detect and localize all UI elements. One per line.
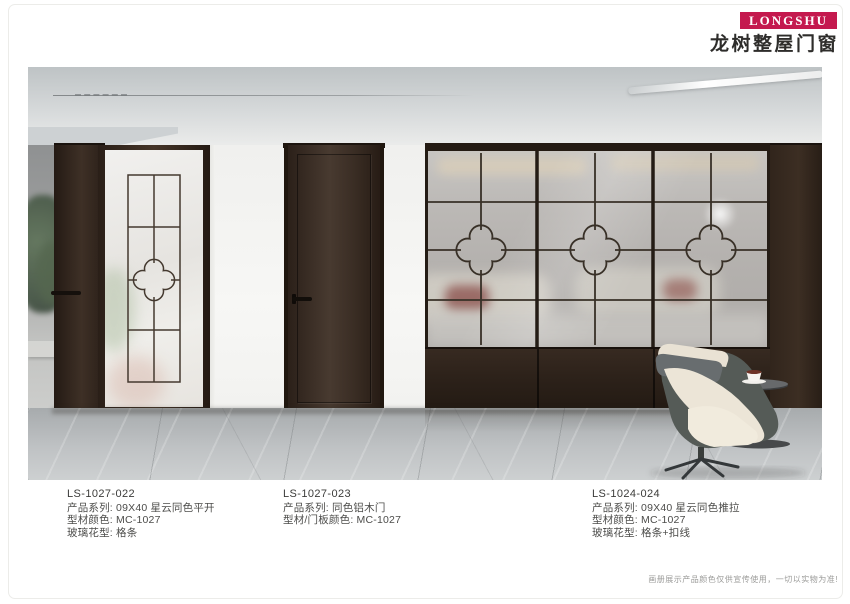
- mid-door-jamb-right: [380, 143, 384, 413]
- swing-door-grid-pattern: [105, 150, 203, 407]
- product-code: LS-1027-022: [67, 488, 282, 500]
- showroom-photo: [28, 67, 822, 480]
- lounge-chair-and-table: [628, 337, 822, 480]
- product-spec: 产品系列: 09X40 星云同色平开: [67, 502, 282, 514]
- ceiling-vent: [75, 94, 127, 96]
- product-caption-2: LS-1027-023 产品系列: 同色铝木门 型材/门板颜色: MC-1027: [283, 488, 498, 527]
- glass-swing-door: [98, 145, 210, 413]
- product-spec: 型材颜色: MC-1027: [67, 514, 282, 526]
- product-caption-3: LS-1024-024 产品系列: 09X40 星云同色推拉 型材颜色: MC-…: [592, 488, 807, 539]
- product-code: LS-1027-023: [283, 488, 498, 500]
- wood-door-panel-groove: [297, 154, 371, 403]
- catalog-page: LONGSHU 龙树整屋门窗: [0, 0, 850, 604]
- disclaimer-text: 画册展示产品颜色仅供宣传使用，一切以实物为准!: [648, 574, 838, 585]
- partition-grid-pattern: [425, 151, 770, 347]
- product-spec: 型材颜色: MC-1027: [592, 514, 807, 526]
- panel-seam: [537, 349, 539, 410]
- left-door-handle: [51, 291, 81, 295]
- quatrefoil-pattern: [570, 225, 619, 274]
- product-spec: 产品系列: 同色铝木门: [283, 502, 498, 514]
- product-code: LS-1024-024: [592, 488, 807, 500]
- product-spec: 玻璃花型: 格条: [67, 527, 282, 539]
- partition-top-rail: [425, 143, 770, 151]
- wood-door-handle: [292, 297, 312, 301]
- brand-logo-badge: LONGSHU: [740, 12, 837, 29]
- brand-name: 龙树整屋门窗: [710, 29, 839, 56]
- door-casing: [210, 145, 215, 413]
- product-caption-1: LS-1027-022 产品系列: 09X40 星云同色平开 型材颜色: MC-…: [67, 488, 282, 539]
- lounge-chair: [656, 344, 779, 478]
- quatrefoil-pattern: [456, 225, 505, 274]
- product-spec: 产品系列: 09X40 星云同色推拉: [592, 502, 807, 514]
- brand-logo-text: LONGSHU: [749, 13, 828, 28]
- product-spec: 玻璃花型: 格条+扣线: [592, 527, 807, 539]
- wood-door: [288, 145, 380, 413]
- product-spec: 型材/门板颜色: MC-1027: [283, 514, 498, 526]
- swing-door-glass: [105, 150, 203, 407]
- sliding-partition-glass: [425, 151, 770, 347]
- quatrefoil-pattern: [686, 225, 735, 274]
- quatrefoil-pattern: [133, 259, 174, 300]
